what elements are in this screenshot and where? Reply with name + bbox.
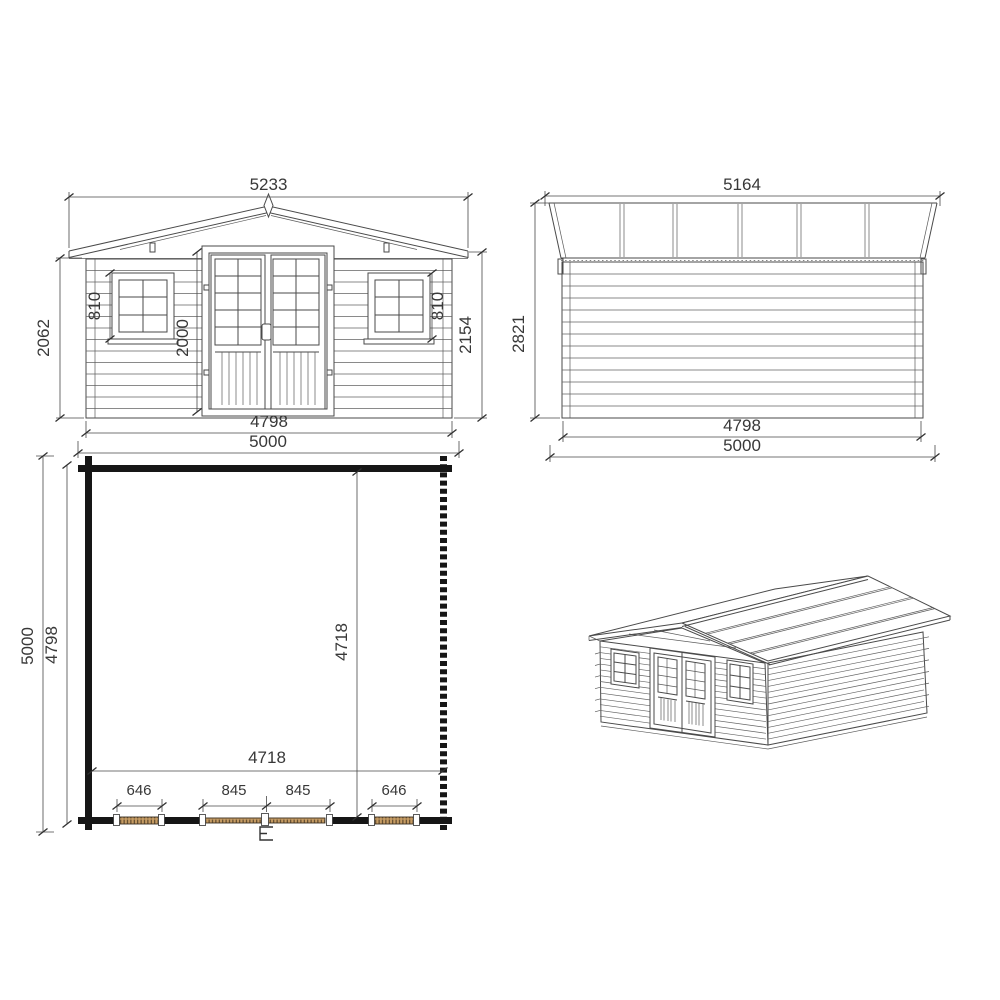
- door-hinge: [204, 370, 209, 375]
- front-double-door: [202, 246, 334, 416]
- front-left-window: [108, 273, 178, 344]
- side-elevation-view: 5164 2821 4798 5000: [509, 175, 945, 462]
- dim-plan-wall-depth: 4798: [42, 626, 61, 664]
- dim-front-door-height: 2000: [173, 319, 192, 357]
- iso-front-left-window: [611, 649, 639, 688]
- window-sill: [108, 339, 178, 344]
- iso-front-doors: [650, 648, 715, 737]
- dim-front-right-window: 810: [428, 292, 447, 320]
- dim-front-left-window: 810: [85, 292, 104, 320]
- dim-side-total-height: 2821: [509, 315, 528, 353]
- door-handle: [262, 324, 271, 340]
- dim-plan-outer-depth: 5000: [18, 627, 37, 665]
- dim-plan-interior-depth: 4718: [332, 623, 351, 661]
- dim-plan-window-left: 646: [126, 782, 151, 799]
- technical-drawing-sheet: 5233 2062 2154 810 810 2000 4798: [0, 0, 1000, 1000]
- front-right-window: [364, 273, 434, 344]
- roof-bracket: [150, 243, 155, 252]
- cabin-plans-drawing: 5233 2062 2154 810 810 2000 4798: [0, 0, 1000, 1000]
- door-hinge: [327, 285, 332, 290]
- dim-side-roof-length: 5164: [723, 175, 761, 194]
- side-roof: [549, 203, 937, 274]
- door-hinge: [204, 285, 209, 290]
- side-wall: [562, 262, 923, 418]
- dim-plan-door-right: 845: [285, 782, 310, 799]
- dim-front-wall-width: 4798: [250, 412, 288, 431]
- side-dimensions: 5164 2821 4798 5000: [509, 175, 945, 462]
- plan-fittings: [114, 814, 420, 841]
- door-hinge: [327, 370, 332, 375]
- dim-plan-window-right: 646: [381, 782, 406, 799]
- dim-plan-interior-width: 4718: [248, 748, 286, 767]
- dim-front-right-height: 2154: [456, 316, 475, 354]
- iso-front-right-window: [727, 660, 753, 704]
- plan-dimensions: 5000 4798 4718 4718 646 845 845: [18, 453, 448, 836]
- dim-front-left-height: 2062: [34, 319, 53, 357]
- dim-plan-door-left: 845: [221, 782, 246, 799]
- window-sill: [364, 339, 434, 344]
- plan-window-right: [374, 817, 415, 824]
- dim-side-wall-length: 4798: [723, 416, 761, 435]
- dim-front-base-width: 5000: [249, 432, 287, 451]
- roof-bracket: [384, 243, 389, 252]
- front-elevation-view: 5233 2062 2154 810 810 2000 4798: [34, 175, 487, 458]
- floor-plan-view: 5000 4798 4718 4718 646 845 845: [18, 453, 452, 841]
- plan-door-center-mark: [260, 827, 273, 840]
- isometric-view: [589, 576, 950, 749]
- plan-window-left: [119, 817, 160, 824]
- plan-door-leaf-left: [205, 818, 264, 823]
- dim-side-base-length: 5000: [723, 436, 761, 455]
- plan-walls: [78, 456, 452, 830]
- plan-door-leaf-right: [266, 818, 325, 823]
- dim-front-roof-width: 5233: [250, 175, 288, 194]
